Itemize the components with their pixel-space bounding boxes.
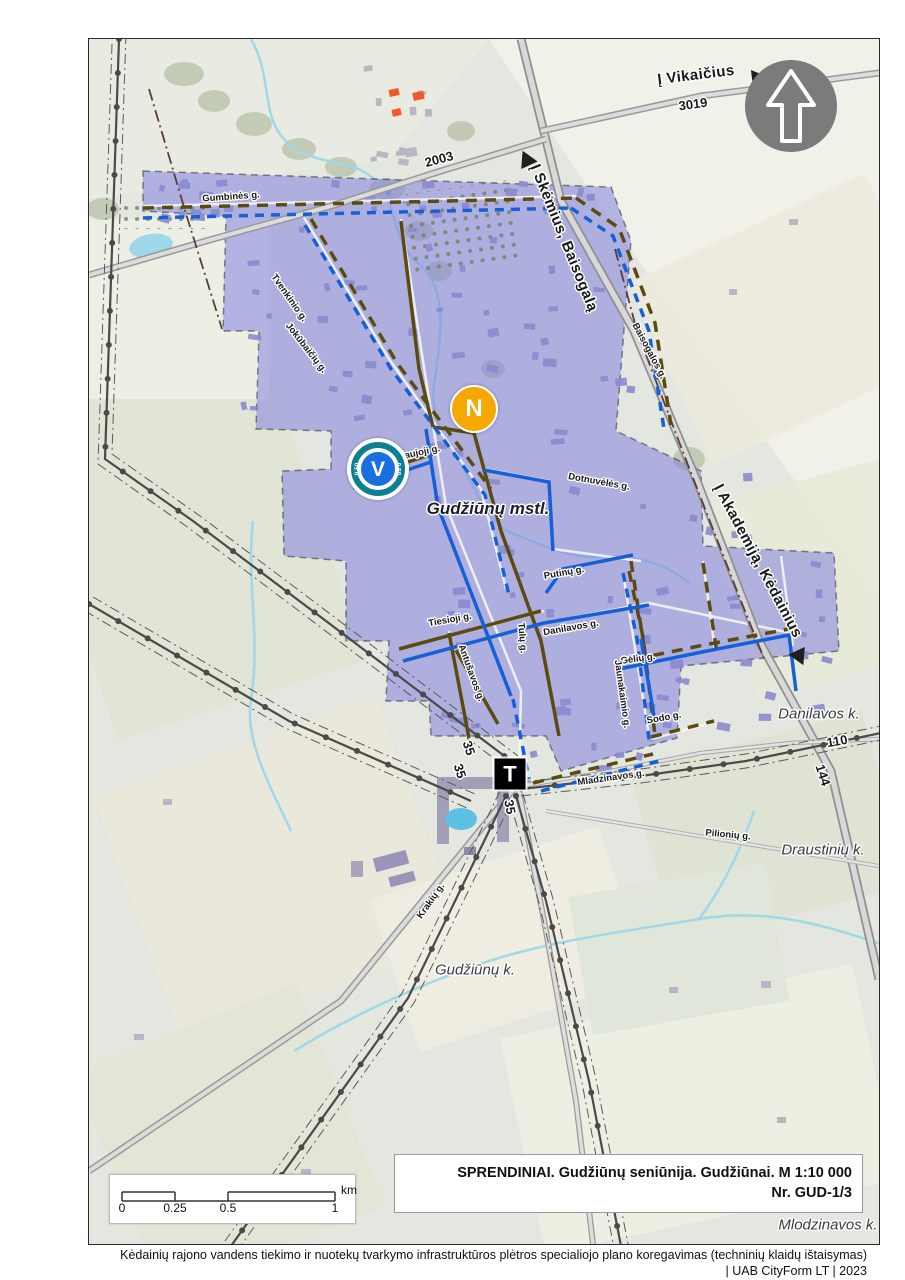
scale-bar: 00.250.51 km: [109, 1174, 356, 1224]
scale-tick-label: 0.25: [163, 1201, 186, 1215]
sheet-title: SPRENDINIAI. Gudžiūnų seniūnija. Gudžiūn…: [405, 1163, 852, 1183]
scale-tick-label: 0.5: [220, 1201, 237, 1215]
footer: Kėdainių rajono vandens tiekimo ir nuote…: [40, 1247, 867, 1279]
map-graphics: [89, 39, 879, 1244]
title-block: SPRENDINIAI. Gudžiūnų seniūnija. Gudžiūn…: [394, 1154, 863, 1213]
scale-tick-label: 1: [332, 1201, 339, 1215]
scale-unit-label: km: [341, 1183, 357, 1197]
scale-tick-label: 0: [119, 1201, 126, 1215]
plan-sheet: { "map": { "street_labels": [ {"text":"G…: [0, 0, 905, 1280]
north-arrow-icon: [744, 59, 838, 153]
sheet-number: Nr. GUD-1/3: [405, 1183, 852, 1203]
footer-line1: Kėdainių rajono vandens tiekimo ir nuote…: [40, 1247, 867, 1263]
map-canvas: Gumbinės g.Tvenkinio g.Jokūbaičių g.Nauj…: [88, 38, 880, 1245]
footer-line2: | UAB CityForm LT | 2023: [40, 1263, 867, 1279]
